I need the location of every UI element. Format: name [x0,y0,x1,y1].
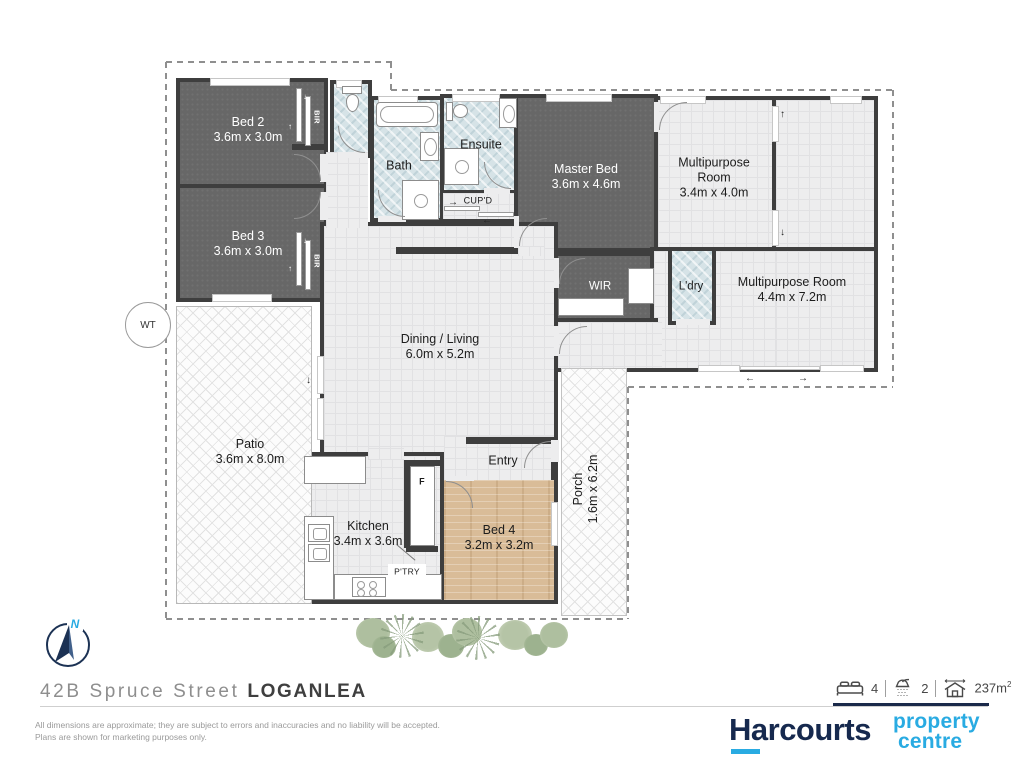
sink-icon [308,544,330,562]
arrow-icon: ← [482,216,492,226]
room-label-kitchen: Kitchen3.4m x 3.6m [334,519,403,549]
label-bir: BIR [310,254,325,268]
shower-icon [444,148,479,185]
room-label-patio: Patio3.6m x 8.0m [216,437,285,467]
label-cupboard: CUP'D [464,194,493,209]
palm-tree-icon [456,616,500,660]
room-label-bed4: Bed 43.2m x 3.2m [465,523,534,553]
toilet-icon [342,86,362,94]
window [551,502,558,546]
arrow-icon: → [448,198,458,208]
room-label-wir: WIR [589,280,611,295]
property-stats: 4 2 237m2 [836,678,1011,698]
arrow-icon: ↑ [780,110,785,120]
arrow-icon: ↓ [303,92,307,102]
window [452,94,500,102]
boundary-dash [390,62,392,90]
tree-icon [540,622,568,648]
bathtub-icon [376,102,438,127]
room-label-entry: Entry [488,454,517,469]
doorway [676,319,710,325]
bir-sliding-door [296,88,302,142]
room-label-bed2: Bed 23.6m x 3.0m [214,115,283,145]
harcourts-logo: Harcourts [729,712,871,748]
property-centre-logo: property centre [893,712,980,752]
toilet-icon [453,104,468,118]
boundary-dash [628,386,893,388]
svg-text:N: N [71,617,80,631]
floorplan-page: { "plan": { "rooms": { "bed2": {"name": … [0,0,1024,768]
stats-divider [885,680,886,697]
baths-count: 2 [921,681,928,696]
boundary-dash [165,62,167,619]
room-label-porch: Porch1.6m x 6.2m [571,455,601,524]
area-value: 237m2 [974,680,1011,695]
palm-tree-icon [380,614,424,658]
window [772,106,779,142]
wall-segment [396,247,518,254]
floor-patch [518,246,544,256]
divider-line-accent [833,703,989,706]
sliding-door [740,366,820,370]
compass-icon: N [42,614,96,677]
floor-patch [776,251,874,368]
room-label-bed3: Bed 33.6m x 3.0m [214,229,283,259]
bir-sliding-door [296,232,302,286]
label-bir: BIR [310,110,325,124]
arrow-icon: ↑ [288,264,292,274]
doorway [446,476,474,481]
wall-segment [406,546,438,552]
arrow-icon: ↓ [306,376,311,386]
kitchen-counter [304,456,366,484]
arrow-icon: ↓ [303,236,307,246]
toilet-icon [446,102,453,121]
window [212,294,272,302]
window [772,210,779,246]
divider-line [40,706,988,707]
window [210,78,290,86]
label-fridge: F [419,475,425,490]
boundary-dash [892,90,894,387]
address-street: 42B Spruce Street [40,681,239,702]
doorway [320,154,328,182]
wardrobe [628,268,654,304]
doorway [368,448,404,460]
hallway [326,152,368,228]
window [317,356,324,394]
window [317,398,324,440]
doorway [320,192,328,220]
stove-icon [352,577,386,597]
stats-divider [935,680,936,697]
room-label-master: Master Bed3.6m x 4.6m [552,162,621,192]
room-label-laundry: L'dry [679,280,704,295]
room-label-multipurpose-2: Multipurpose Room4.4m x 7.2m [738,275,846,305]
window [698,365,740,372]
boundary-dash [627,387,629,619]
harcourts-logo-underline [731,749,760,754]
house-area-icon [943,678,967,698]
arrow-icon: ↓ [780,228,785,238]
shower-icon [893,678,914,698]
window [820,365,864,372]
disclaimer-text: All dimensions are approximate; they are… [35,719,440,743]
room-label-dining: Dining / Living6.0m x 5.2m [401,332,480,362]
sink-icon [308,524,330,542]
room-label-bath: Bath [386,159,412,174]
label-pantry: P'TRY [394,565,420,580]
front-door [551,440,559,462]
boundary-dash [391,89,893,91]
doorway [338,152,364,158]
vanity-icon [420,132,439,161]
bed-icon [836,679,864,697]
arrow-icon: → [798,374,808,384]
room-label-ensuite: Ensuite [460,138,502,153]
room-label-multipurpose-1: MultipurposeRoom3.4m x 4.0m [678,156,750,201]
floor-patch [652,322,662,368]
arrow-icon: ↑ [288,122,292,132]
address-suburb: LOGANLEA [247,681,366,702]
water-tank: WT [125,302,171,348]
wardrobe [558,298,624,316]
shower-icon [402,180,439,220]
vanity-icon [499,98,517,128]
boundary-dash [166,61,392,63]
arrow-icon: ← [745,374,755,384]
beds-count: 4 [871,681,878,696]
window [830,96,862,104]
property-address: 42B Spruce Street LOGANLEA [40,681,367,703]
window [546,94,612,102]
